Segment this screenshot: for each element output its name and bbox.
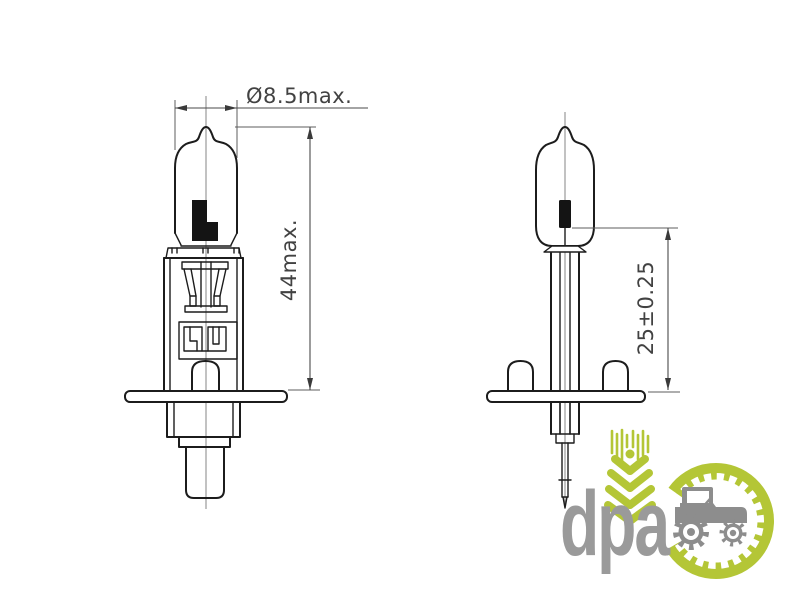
- light-center-dimension: 25±0.25: [572, 228, 680, 392]
- bulb-technical-drawing-page: Ø8.5max. 44max. 25±0.25: [0, 0, 800, 600]
- front-upper-contact: [182, 262, 228, 312]
- front-seal-dome: [192, 361, 219, 391]
- length-dimension: 44max.: [235, 127, 320, 390]
- light-center-dimension-label: 25±0.25: [634, 261, 658, 356]
- dpa-logo: dpa: [560, 430, 769, 575]
- front-lower-contact: [179, 322, 237, 359]
- length-dimension-label: 44max.: [277, 219, 301, 301]
- tractor-icon: [675, 487, 747, 547]
- front-base-body: [164, 258, 243, 391]
- side-flange: [487, 391, 645, 402]
- side-filament: [559, 200, 571, 228]
- front-view: [125, 96, 287, 509]
- front-collar-ticks: [172, 248, 239, 253]
- side-pinch-skirt: [544, 246, 586, 252]
- front-terminal: [167, 402, 240, 498]
- side-right-bump: [603, 361, 628, 391]
- front-filament-shape: [192, 200, 218, 241]
- diameter-dimension-label: Ø8.5max.: [246, 84, 352, 108]
- front-flange: [125, 391, 287, 402]
- wheat-grain-dot: [626, 450, 635, 459]
- diameter-dimension: Ø8.5max.: [175, 84, 368, 158]
- bulb-technical-drawing: Ø8.5max. 44max. 25±0.25: [0, 0, 800, 600]
- dpa-logo-text: dpa: [560, 473, 671, 575]
- side-left-bump: [508, 361, 533, 391]
